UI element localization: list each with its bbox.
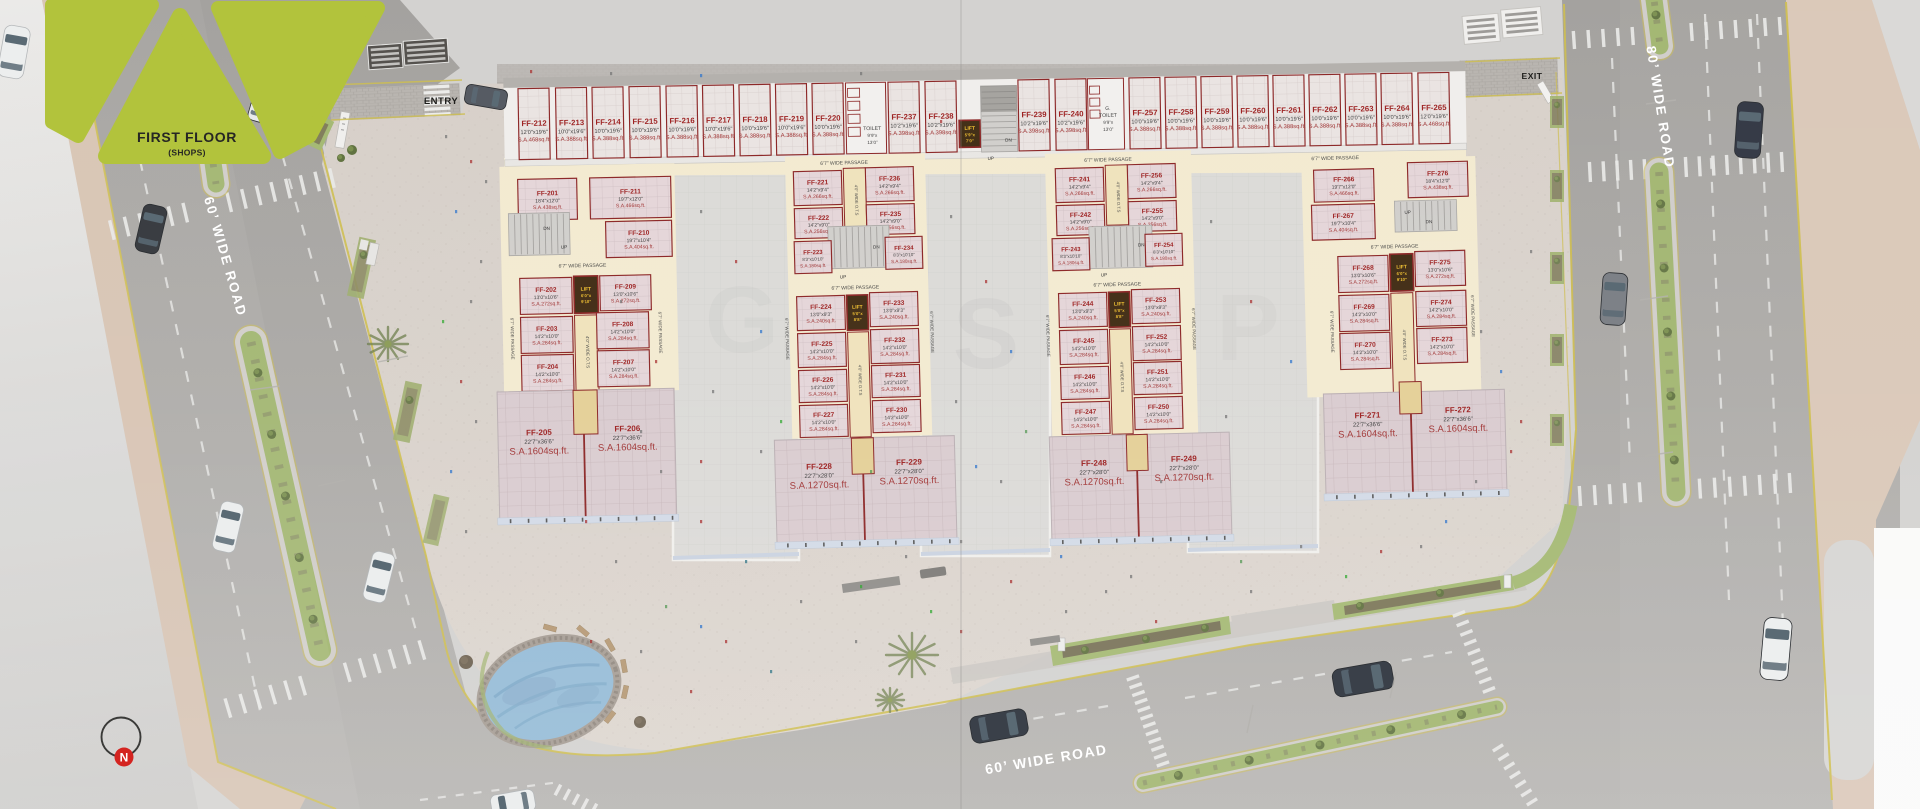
svg-text:S: S (953, 278, 1020, 390)
svg-text:P: P (1216, 275, 1279, 381)
svg-text:(SHOPS): (SHOPS) (168, 148, 206, 158)
svg-text:G: G (705, 267, 779, 373)
svg-text:N: N (120, 751, 129, 765)
svg-text:ENTRY: ENTRY (424, 96, 459, 107)
svg-text:EXIT: EXIT (1522, 71, 1543, 81)
svg-text:FIRST FLOOR: FIRST FLOOR (137, 129, 237, 145)
